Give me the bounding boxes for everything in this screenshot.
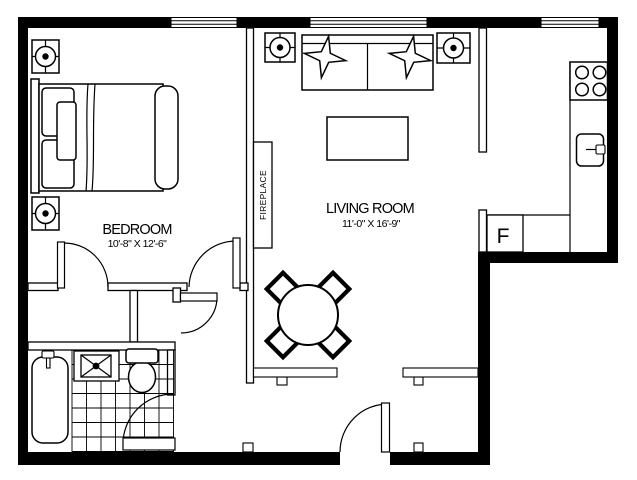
- bathroom-door-icon: [123, 394, 175, 450]
- entry-door-icon: [340, 403, 390, 452]
- living-room-dimensions: 11'-0" X 16'-9": [342, 218, 401, 230]
- dining-table-icon: [278, 285, 338, 345]
- bedroom-door2-icon: [189, 238, 240, 288]
- bedroom-label: BEDROOM: [102, 222, 171, 238]
- fireplace-label: FIREPLACE: [258, 170, 268, 220]
- bed-icon: [31, 79, 178, 193]
- refrigerator-label: F: [497, 225, 510, 248]
- living-room-label: LIVING ROOM: [326, 201, 414, 217]
- toilet-icon: [126, 349, 158, 393]
- dining-set-icon: [267, 273, 350, 358]
- bedroom-door-icon: [58, 242, 109, 288]
- floor-plan: FIREPLACE: [0, 0, 637, 480]
- bathtub-icon: [32, 351, 68, 443]
- bedroom-window-icon: [168, 17, 240, 28]
- ceiling-light-icon: [265, 33, 295, 62]
- ceiling-light-icon: [32, 40, 59, 73]
- stove-icon: [570, 62, 608, 100]
- coffee-table-icon: [327, 117, 408, 160]
- kitchen: F: [487, 62, 608, 252]
- sofa-icon: [302, 35, 433, 90]
- living-room-window-icon: [307, 17, 430, 28]
- baseboard-heater-icon: [243, 368, 478, 452]
- ceiling-light-icon: [32, 197, 59, 230]
- kitchen-sink-icon: [577, 134, 606, 166]
- kitchen-window-icon: [538, 17, 602, 28]
- floor-plan-svg: FIREPLACE: [0, 0, 637, 480]
- refrigerator-icon: F: [487, 215, 523, 252]
- fireplace-icon: FIREPLACE: [254, 142, 273, 248]
- vanity-sink-icon: [74, 351, 119, 381]
- ceiling-light-icon: [437, 33, 470, 63]
- bedroom-dimensions: 10'-8" X 12'-6": [108, 238, 168, 250]
- hall-door-icon: [181, 293, 218, 333]
